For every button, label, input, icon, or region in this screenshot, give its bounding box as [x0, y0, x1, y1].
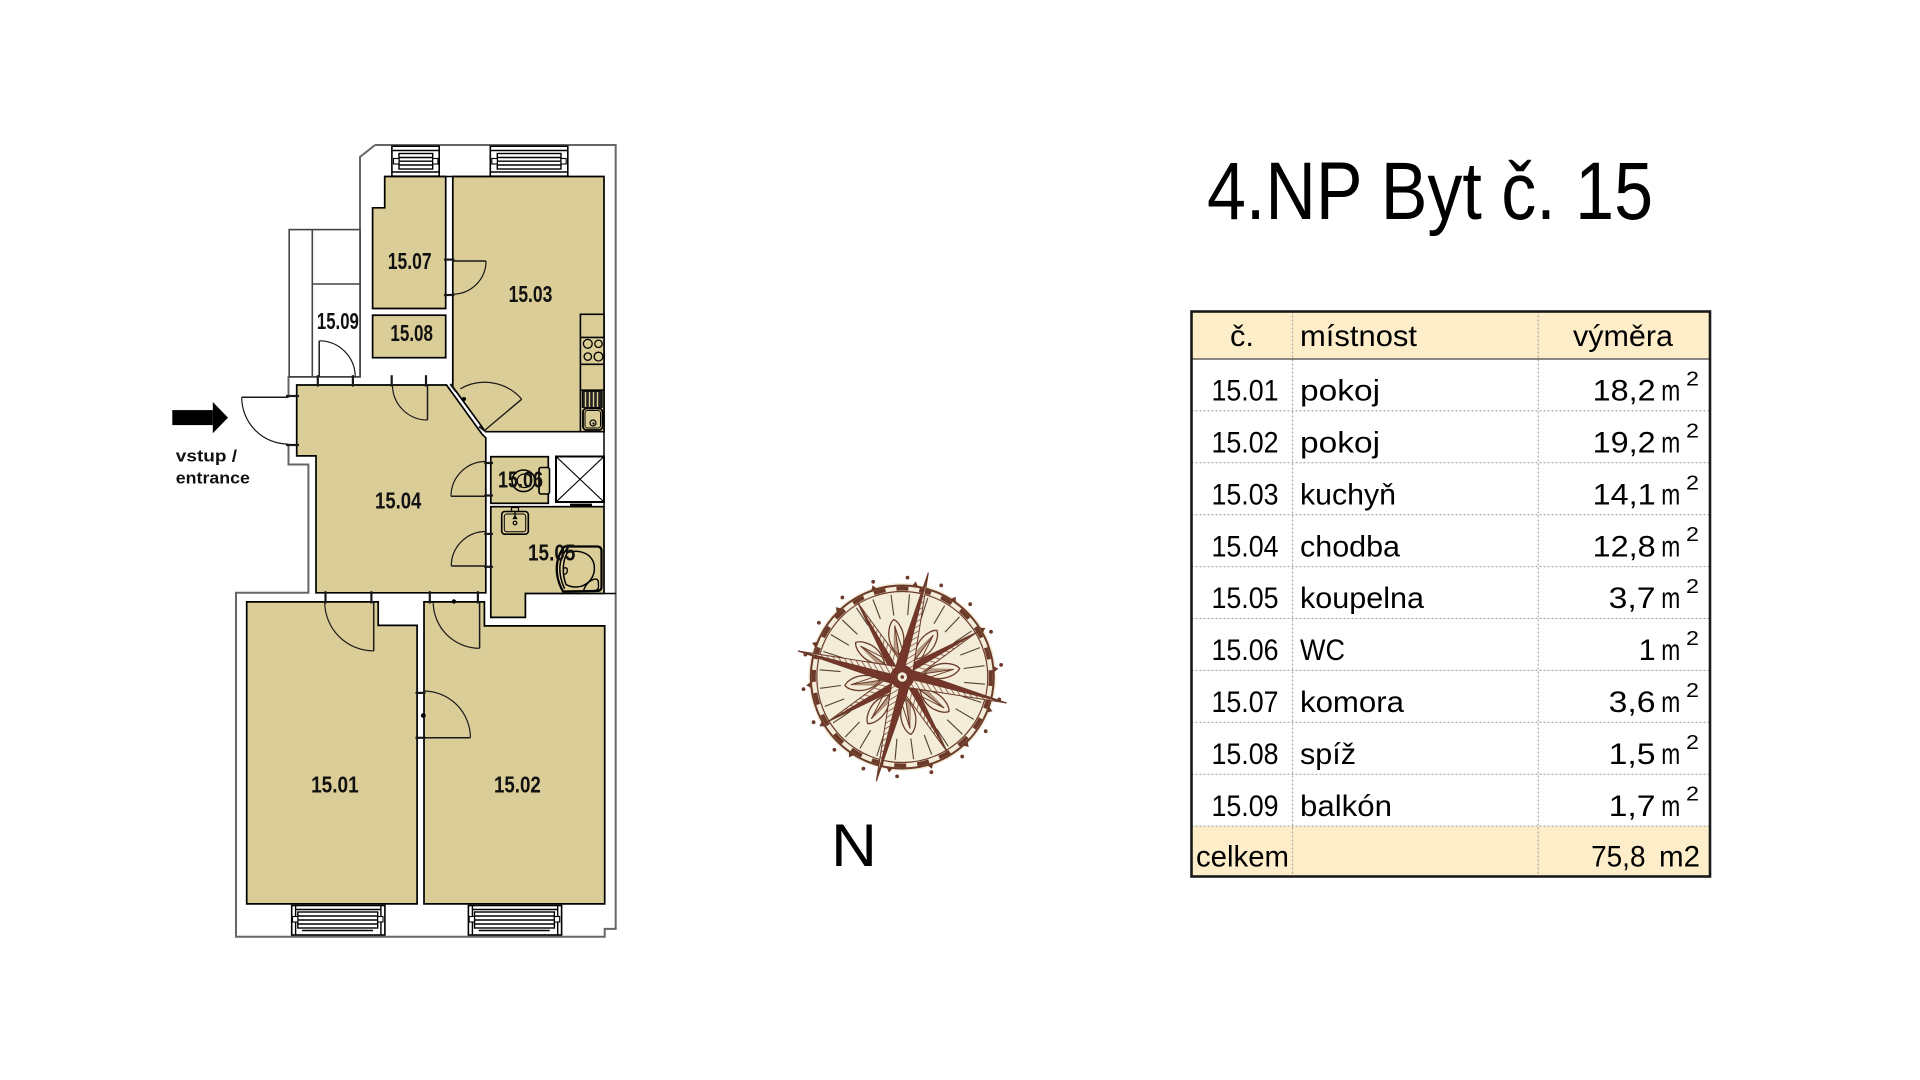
- svg-text:15.08: 15.08: [1212, 738, 1279, 771]
- svg-text:č.: č.: [1230, 320, 1254, 353]
- svg-text:15.09: 15.09: [1212, 790, 1279, 823]
- svg-text:15.02: 15.02: [494, 772, 541, 798]
- svg-text:19,2: 19,2: [1593, 427, 1656, 460]
- svg-text:15.03: 15.03: [509, 281, 553, 307]
- svg-text:15.04: 15.04: [1212, 530, 1279, 563]
- svg-text:m: m: [1661, 634, 1680, 667]
- svg-text:2: 2: [1686, 732, 1699, 754]
- svg-text:N: N: [831, 812, 877, 879]
- svg-text:14,1: 14,1: [1593, 478, 1656, 511]
- svg-text:4.NP Byt č. 15: 4.NP Byt č. 15: [1207, 146, 1653, 237]
- svg-text:2: 2: [1686, 420, 1699, 442]
- svg-text:spíž: spíž: [1300, 738, 1356, 771]
- svg-text:15.05: 15.05: [528, 540, 576, 566]
- svg-text:1: 1: [1639, 634, 1656, 667]
- svg-text:místnost: místnost: [1300, 320, 1418, 353]
- svg-text:koupelna: koupelna: [1300, 582, 1424, 615]
- svg-text:15.07: 15.07: [1212, 686, 1279, 719]
- svg-text:m: m: [1661, 582, 1680, 615]
- svg-text:m: m: [1661, 427, 1680, 460]
- svg-text:15.04: 15.04: [375, 488, 421, 514]
- svg-text:15.05: 15.05: [1212, 582, 1279, 615]
- svg-text:kuchyň: kuchyň: [1300, 478, 1396, 511]
- svg-text:15.06: 15.06: [498, 467, 543, 493]
- svg-text:15.01: 15.01: [1212, 375, 1279, 408]
- svg-text:3,6: 3,6: [1609, 686, 1656, 719]
- svg-text:2: 2: [1686, 524, 1699, 546]
- svg-text:celkem: celkem: [1196, 841, 1289, 874]
- svg-text:chodba: chodba: [1300, 530, 1400, 563]
- svg-text:m2: m2: [1659, 841, 1700, 874]
- svg-text:3,7: 3,7: [1609, 582, 1656, 615]
- svg-text:15.08: 15.08: [390, 320, 433, 346]
- svg-text:vstup /: vstup /: [176, 447, 238, 466]
- svg-text:komora: komora: [1300, 686, 1404, 719]
- svg-text:výměra: výměra: [1573, 320, 1673, 353]
- svg-text:WC: WC: [1300, 634, 1345, 667]
- svg-text:15.02: 15.02: [1212, 427, 1279, 460]
- svg-text:m: m: [1661, 530, 1680, 563]
- svg-text:m: m: [1661, 686, 1680, 719]
- svg-text:m: m: [1661, 790, 1680, 823]
- svg-text:75,8: 75,8: [1591, 841, 1645, 874]
- svg-text:12,8: 12,8: [1593, 530, 1656, 563]
- svg-text:15.01: 15.01: [311, 772, 359, 798]
- svg-text:2: 2: [1686, 784, 1699, 806]
- svg-text:2: 2: [1686, 628, 1699, 650]
- svg-text:1,5: 1,5: [1609, 738, 1656, 771]
- svg-text:2: 2: [1686, 680, 1699, 702]
- svg-text:15.03: 15.03: [1212, 478, 1279, 511]
- svg-text:2: 2: [1686, 576, 1699, 598]
- svg-text:balkón: balkón: [1300, 790, 1392, 823]
- svg-text:15.06: 15.06: [1212, 634, 1279, 667]
- svg-text:18,2: 18,2: [1593, 375, 1656, 408]
- svg-text:2: 2: [1686, 369, 1699, 391]
- svg-text:m: m: [1661, 478, 1680, 511]
- svg-text:15.09: 15.09: [317, 308, 359, 334]
- svg-text:m: m: [1661, 738, 1680, 771]
- svg-text:15.07: 15.07: [388, 248, 432, 274]
- svg-text:1,7: 1,7: [1609, 790, 1656, 823]
- svg-text:m: m: [1661, 375, 1680, 408]
- svg-text:pokoj: pokoj: [1300, 375, 1380, 408]
- svg-text:entrance: entrance: [176, 469, 250, 488]
- svg-text:pokoj: pokoj: [1300, 427, 1380, 460]
- svg-text:2: 2: [1686, 472, 1699, 494]
